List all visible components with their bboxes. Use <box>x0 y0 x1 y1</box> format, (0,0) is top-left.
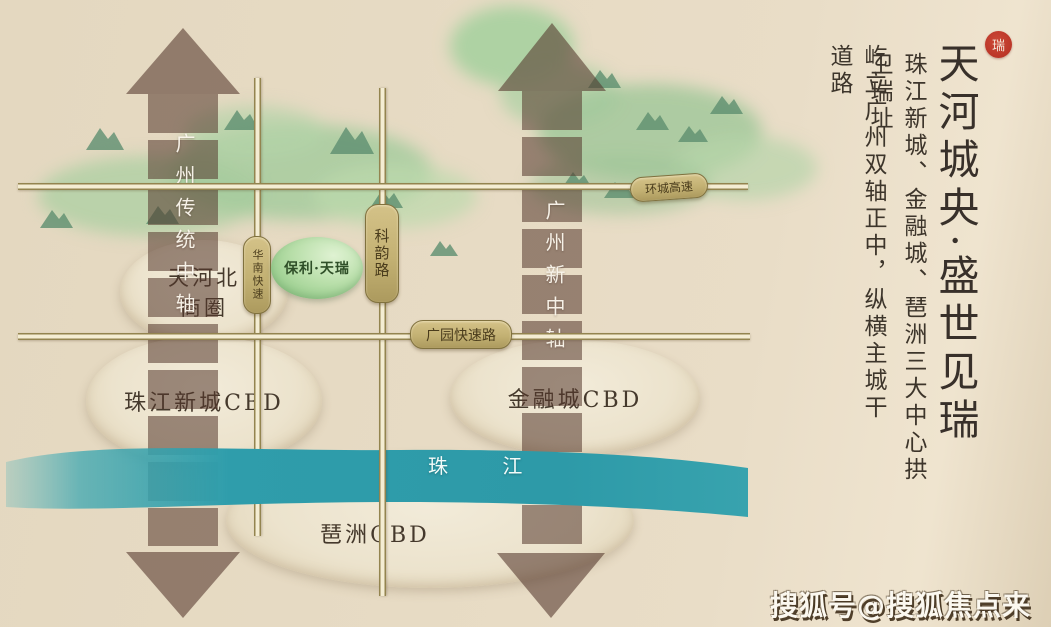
left-axis-arrowhead-down-icon <box>126 552 240 618</box>
poster-location-map: 天河北 商圈 珠江新城CBD 金融城CBD 琶洲CBD 广州传统中轴 广州新中轴… <box>0 0 1051 627</box>
right-axis-arrowhead-down-icon <box>497 553 605 618</box>
road-label-guangyuan-text: 广园快速路 <box>426 325 496 345</box>
road-label-huanan-text: 华南快速 <box>249 249 265 301</box>
river-label: 珠 江 <box>428 450 546 479</box>
road-label-ring-expressway-text: 环城高速 <box>644 177 693 197</box>
left-axis-arrowhead-up-icon <box>126 28 240 94</box>
road-label-keyun-text: 科韵路 <box>372 228 393 279</box>
right-axis-label: 广州新中轴 <box>540 200 569 430</box>
watermark-sohu: 搜狐号@搜狐焦点来宾站 <box>770 584 1051 627</box>
project-marker-label: 保利·天瑞 <box>284 258 350 278</box>
road-label-guangyuan: 广园快速路 <box>410 320 512 349</box>
road-label-huanan: 华南快速 <box>243 236 271 314</box>
road-label-keyun: 科韵路 <box>365 204 399 303</box>
panel-subtitle-line2: 屹立广州双轴正中，纵横主城干道路 <box>822 44 890 424</box>
left-axis-label: 广州传统中轴 <box>170 133 199 393</box>
road-guangyuan-expressway <box>18 333 750 340</box>
project-marker-poly-tianrui: 保利·天瑞 <box>271 237 363 299</box>
road-label-ring-expressway: 环城高速 <box>629 172 709 202</box>
red-seal-icon: 瑞 <box>985 31 1012 58</box>
right-axis-arrowhead-up-icon <box>498 23 606 91</box>
district-pazhou-label: 琶洲CBD <box>320 517 430 549</box>
road-keyun <box>379 88 386 596</box>
panel-title: 天河城央·盛世见瑞 <box>925 42 985 462</box>
seal-character: 瑞 <box>992 35 1005 54</box>
